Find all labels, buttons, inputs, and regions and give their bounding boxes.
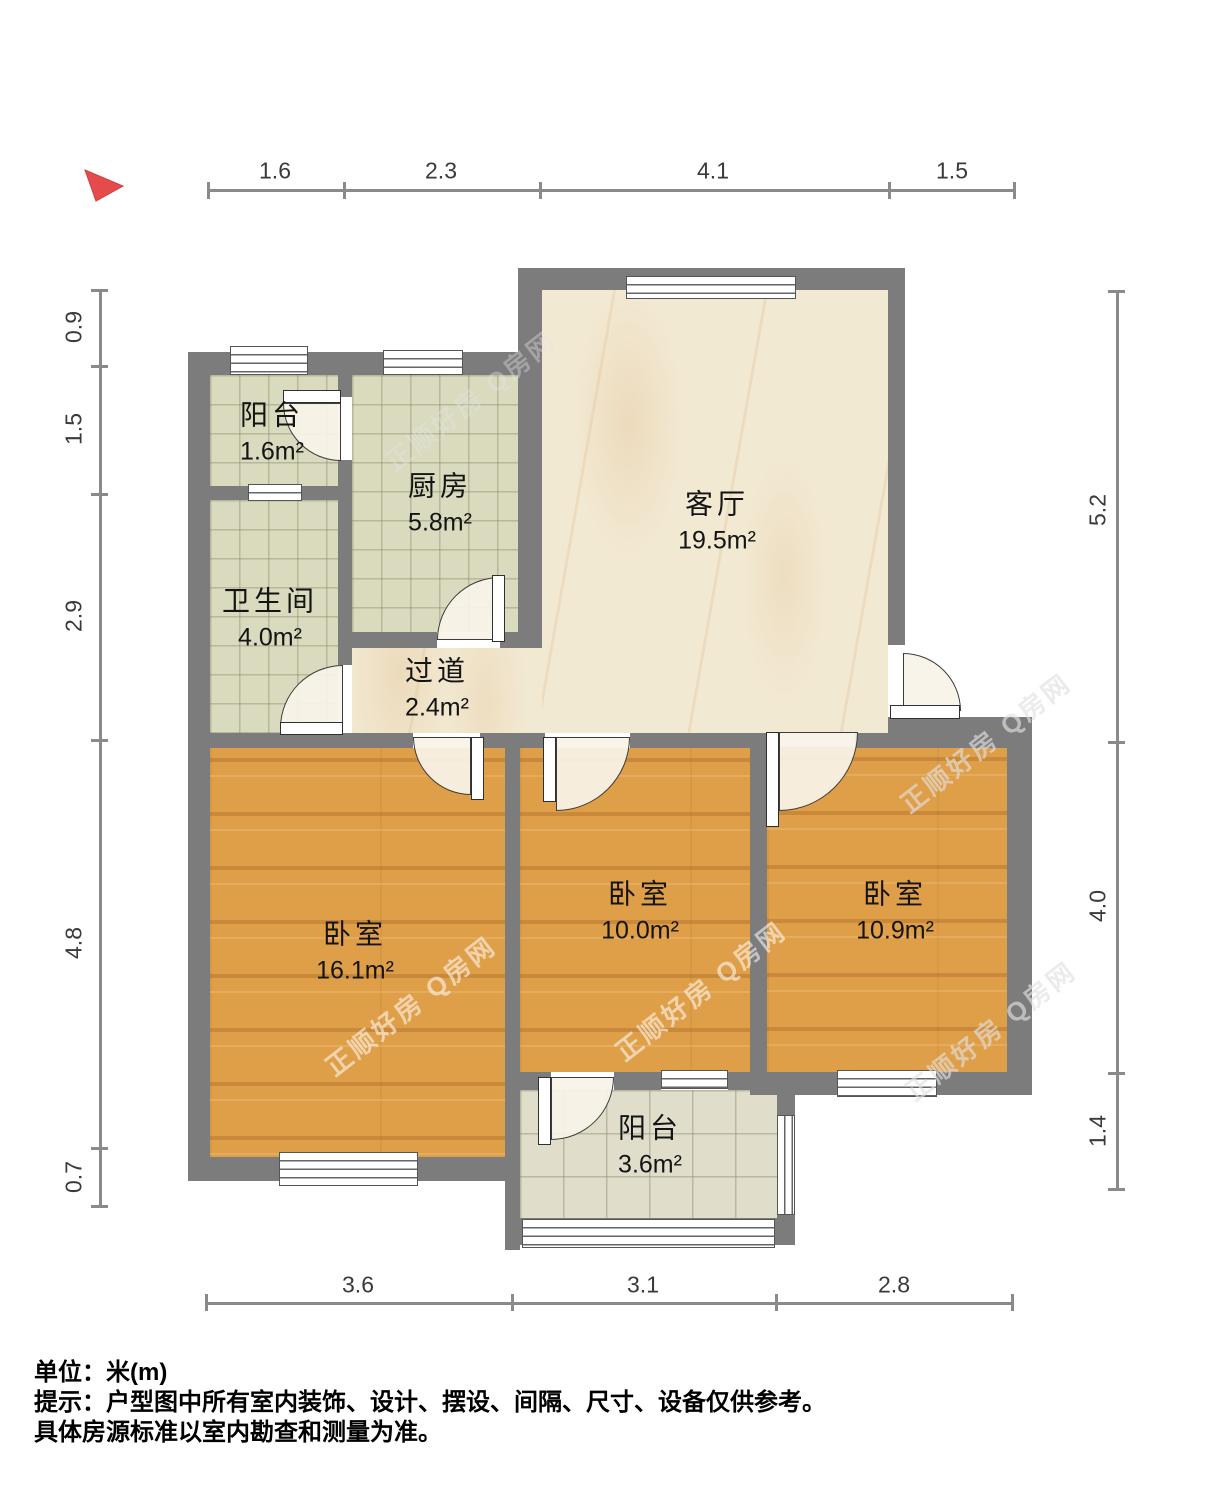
room-name: 卧室 — [601, 873, 679, 913]
room-area: 2.4m² — [405, 694, 469, 723]
wall — [1007, 717, 1032, 1095]
room-label-living-room: 客厅 19.5m² — [678, 483, 756, 556]
door-leaf-bedroom-middle — [543, 737, 556, 802]
dim-left-1: 0.9 — [61, 311, 88, 343]
dim-right-2: 4.0 — [1085, 890, 1112, 922]
note-hint2: 具体房源标准以室内勘查和测量为准。 — [34, 1412, 442, 1447]
tick — [1013, 182, 1016, 199]
dim-right-1: 5.2 — [1085, 494, 1112, 526]
wall — [888, 268, 905, 645]
dimension-line-top — [207, 189, 1016, 192]
room-label-hallway: 过道 2.4m² — [405, 650, 469, 723]
door-leaf-entry — [890, 705, 960, 719]
tick — [91, 739, 108, 742]
room-label-kitchen: 厨房 5.8m² — [408, 465, 472, 538]
wall — [518, 290, 542, 632]
wall — [630, 733, 768, 748]
room-name: 卧室 — [316, 913, 394, 953]
wall — [855, 733, 1032, 748]
tick — [1011, 1294, 1014, 1311]
wall — [750, 733, 767, 1072]
room-name: 卧室 — [856, 873, 934, 913]
tick — [91, 493, 108, 496]
north-arrow-icon — [80, 164, 128, 206]
tick — [539, 182, 542, 199]
tick — [1108, 290, 1125, 293]
room-area: 10.9m² — [856, 917, 934, 946]
room-area: 19.5m² — [678, 527, 756, 556]
room-label-bedroom-left: 卧室 16.1m² — [316, 913, 394, 986]
dimension-line-bottom — [205, 1302, 1013, 1305]
window — [230, 346, 308, 375]
dim-left-5: 0.7 — [61, 1161, 88, 1193]
window — [837, 1070, 937, 1097]
room-label-balcony-south: 阳台 3.6m² — [618, 1107, 682, 1180]
room-label-bathroom: 卫生间 4.0m² — [222, 580, 318, 653]
window — [279, 1152, 418, 1186]
wall — [500, 632, 542, 648]
wall — [338, 632, 437, 648]
dim-top-4: 1.5 — [936, 158, 968, 185]
dimension-line-left — [99, 289, 102, 1208]
room-label-bedroom-right: 卧室 10.9m² — [856, 873, 934, 946]
room-name: 客厅 — [678, 483, 756, 523]
wall — [188, 352, 210, 1181]
room-area: 1.6m² — [240, 438, 304, 467]
floor-plan: 阳台 1.6m² 厨房 5.8m² 卫生间 4.0m² 过道 2.4m² 客厅 … — [0, 0, 1219, 1492]
room-label-bedroom-middle: 卧室 10.0m² — [601, 873, 679, 946]
tick — [1108, 1188, 1125, 1191]
room-area: 10.0m² — [601, 917, 679, 946]
tick — [207, 182, 210, 199]
door-swing-entry — [903, 653, 961, 711]
tick — [1108, 741, 1125, 744]
room-label-balcony-north: 阳台 1.6m² — [240, 394, 304, 467]
dim-left-3: 2.9 — [61, 600, 88, 632]
room-area: 4.0m² — [222, 624, 318, 653]
wall — [188, 733, 413, 748]
room-name: 过道 — [405, 650, 469, 690]
door-leaf-kitchen — [492, 575, 505, 642]
dim-top-1: 1.6 — [259, 158, 291, 185]
window — [248, 484, 302, 501]
tick — [775, 1294, 778, 1311]
window — [661, 1070, 728, 1089]
window — [383, 350, 463, 375]
room-name: 厨房 — [408, 465, 472, 505]
tick — [888, 182, 891, 199]
dim-bottom-1: 3.6 — [342, 1272, 374, 1299]
tick — [205, 1294, 208, 1311]
dim-top-3: 4.1 — [697, 158, 729, 185]
tick — [1108, 1072, 1125, 1075]
room-name: 阳台 — [240, 394, 304, 434]
room-name: 卫生间 — [222, 580, 318, 620]
dim-left-4: 4.8 — [61, 927, 88, 959]
dim-right-3: 1.4 — [1085, 1115, 1112, 1147]
tick — [91, 365, 108, 368]
dim-bottom-2: 3.1 — [627, 1272, 659, 1299]
tick — [91, 289, 108, 292]
room-area: 5.8m² — [408, 509, 472, 538]
door-leaf-bedroom-left — [471, 737, 484, 800]
window — [626, 276, 796, 299]
tick — [91, 1205, 108, 1208]
tick — [511, 1294, 514, 1311]
tick — [91, 1147, 108, 1150]
window — [777, 1115, 795, 1215]
room-name: 阳台 — [618, 1107, 682, 1147]
window — [522, 1219, 775, 1248]
door-leaf-bedroom-right — [766, 732, 779, 827]
room-area: 16.1m² — [316, 957, 394, 986]
dim-left-2: 1.5 — [61, 413, 88, 445]
room-area: 3.6m² — [618, 1151, 682, 1180]
dim-bottom-3: 2.8 — [878, 1272, 910, 1299]
wall — [614, 1072, 661, 1090]
door-leaf-bathroom — [280, 722, 343, 735]
dim-top-2: 2.3 — [425, 158, 457, 185]
door-leaf-balcony-south — [538, 1077, 551, 1145]
tick — [343, 182, 346, 199]
